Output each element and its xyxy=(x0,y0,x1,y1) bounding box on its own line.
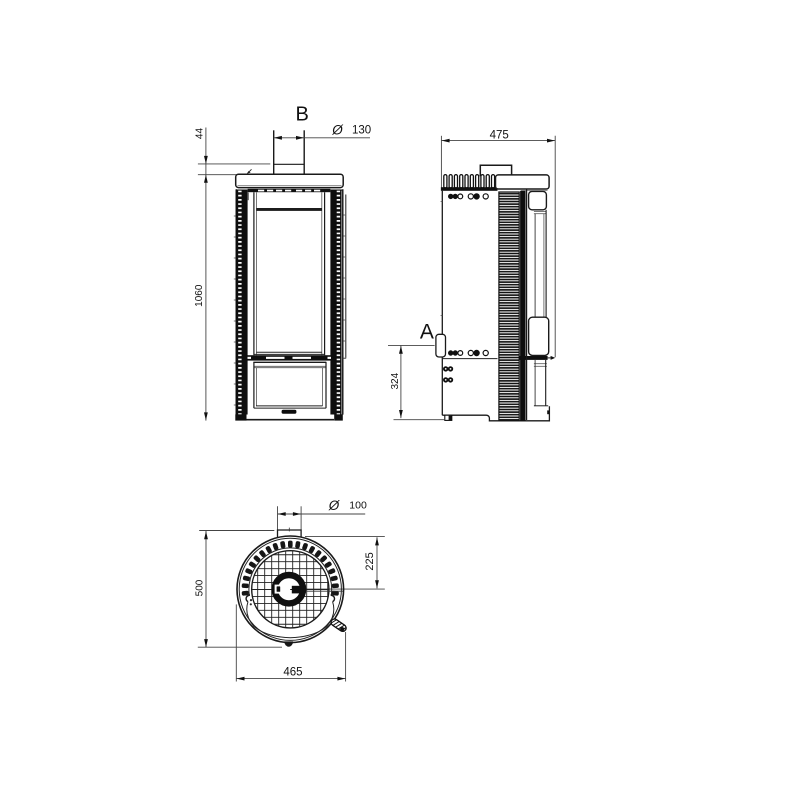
svg-text:475: 475 xyxy=(490,129,509,141)
svg-text:225: 225 xyxy=(364,552,376,570)
svg-text:Ø: Ø xyxy=(328,498,341,513)
svg-text:Ø: Ø xyxy=(331,123,344,138)
svg-text:A: A xyxy=(420,321,434,344)
svg-text:1060: 1060 xyxy=(194,284,205,307)
svg-text:324: 324 xyxy=(390,372,401,389)
svg-text:465: 465 xyxy=(283,666,302,678)
svg-text:100: 100 xyxy=(349,500,367,512)
svg-text:130: 130 xyxy=(352,125,371,137)
svg-text:B: B xyxy=(296,103,309,125)
svg-text:500: 500 xyxy=(194,579,205,596)
svg-text:44: 44 xyxy=(194,128,205,140)
